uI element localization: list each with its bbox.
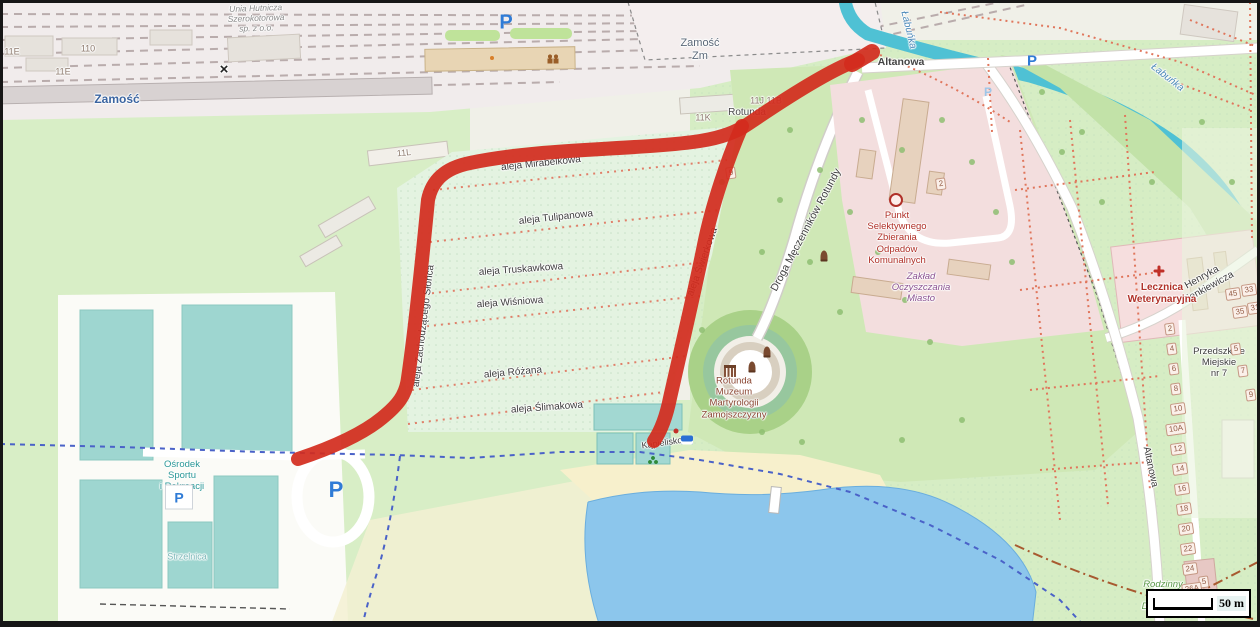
scale-bar-label: 50 m bbox=[1217, 596, 1246, 611]
highlighted-route bbox=[298, 52, 872, 459]
scale-bar: 50 m bbox=[1146, 589, 1251, 618]
scale-bar-line bbox=[1153, 598, 1213, 610]
scanned-map-zamosc: Zamość Zamość Zm Unia Hutnicza Szerokoto… bbox=[0, 0, 1260, 627]
route-overlay-layer bbox=[0, 0, 1260, 627]
